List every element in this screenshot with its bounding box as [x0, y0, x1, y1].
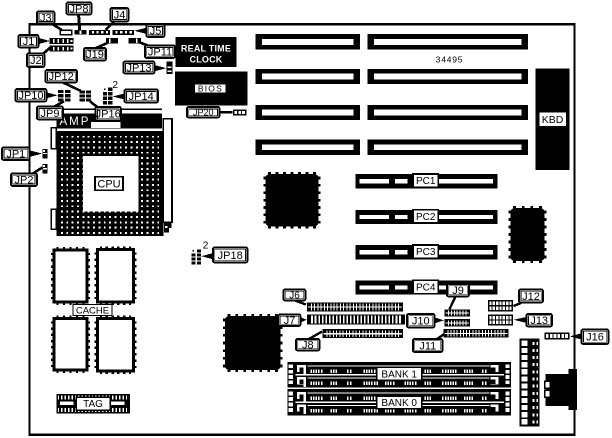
svg-text:2: 2	[113, 80, 119, 91]
svg-text:JP9: JP9	[41, 108, 60, 120]
svg-text:CACHE: CACHE	[76, 305, 109, 316]
svg-text:JP12: JP12	[49, 71, 74, 83]
svg-text:J12: J12	[522, 291, 540, 303]
svg-text:PC4: PC4	[416, 283, 436, 294]
svg-text:PC3: PC3	[416, 247, 436, 258]
svg-text:2: 2	[203, 241, 209, 252]
svg-text:J9: J9	[452, 285, 464, 297]
svg-text:34495: 34495	[436, 55, 464, 65]
svg-text:J19: J19	[86, 49, 104, 61]
svg-text:J8: J8	[302, 340, 314, 352]
svg-text:JP13: JP13	[126, 62, 151, 74]
svg-text:JP14: JP14	[129, 91, 154, 103]
svg-text:JP16: JP16	[96, 109, 121, 121]
svg-text:KBD: KBD	[542, 114, 564, 126]
svg-text:JP2: JP2	[15, 175, 34, 187]
svg-text:BANK 0: BANK 0	[381, 398, 417, 409]
svg-text:J4: J4	[114, 10, 126, 22]
svg-text:J16: J16	[586, 332, 604, 344]
svg-text:JP20: JP20	[193, 107, 214, 117]
svg-text:J7: J7	[284, 315, 296, 327]
svg-text:J13: J13	[530, 315, 548, 327]
svg-text:J6: J6	[289, 291, 300, 302]
svg-text:J1: J1	[23, 36, 35, 48]
svg-text:BIOS: BIOS	[198, 83, 223, 93]
svg-text:JP1: JP1	[6, 149, 25, 161]
svg-text:J2: J2	[30, 55, 42, 67]
svg-text:CPU: CPU	[97, 179, 120, 191]
svg-text:J10: J10	[412, 316, 430, 328]
svg-text:JP11: JP11	[148, 47, 172, 59]
svg-text:PC1: PC1	[416, 176, 436, 187]
svg-text:JP8: JP8	[70, 3, 89, 15]
svg-text:CLOCK: CLOCK	[190, 55, 223, 65]
svg-text:J3: J3	[40, 12, 52, 24]
svg-text:TAG: TAG	[83, 399, 103, 410]
svg-text:J5: J5	[150, 26, 162, 38]
svg-text:J11: J11	[419, 340, 436, 352]
svg-text:JP10: JP10	[18, 90, 43, 102]
svg-text:BANK 1: BANK 1	[381, 370, 417, 381]
svg-text:JP18: JP18	[218, 250, 243, 262]
svg-text:REAL TIME: REAL TIME	[181, 44, 231, 54]
svg-text:PC2: PC2	[416, 212, 436, 223]
svg-text:AMP: AMP	[60, 116, 91, 128]
